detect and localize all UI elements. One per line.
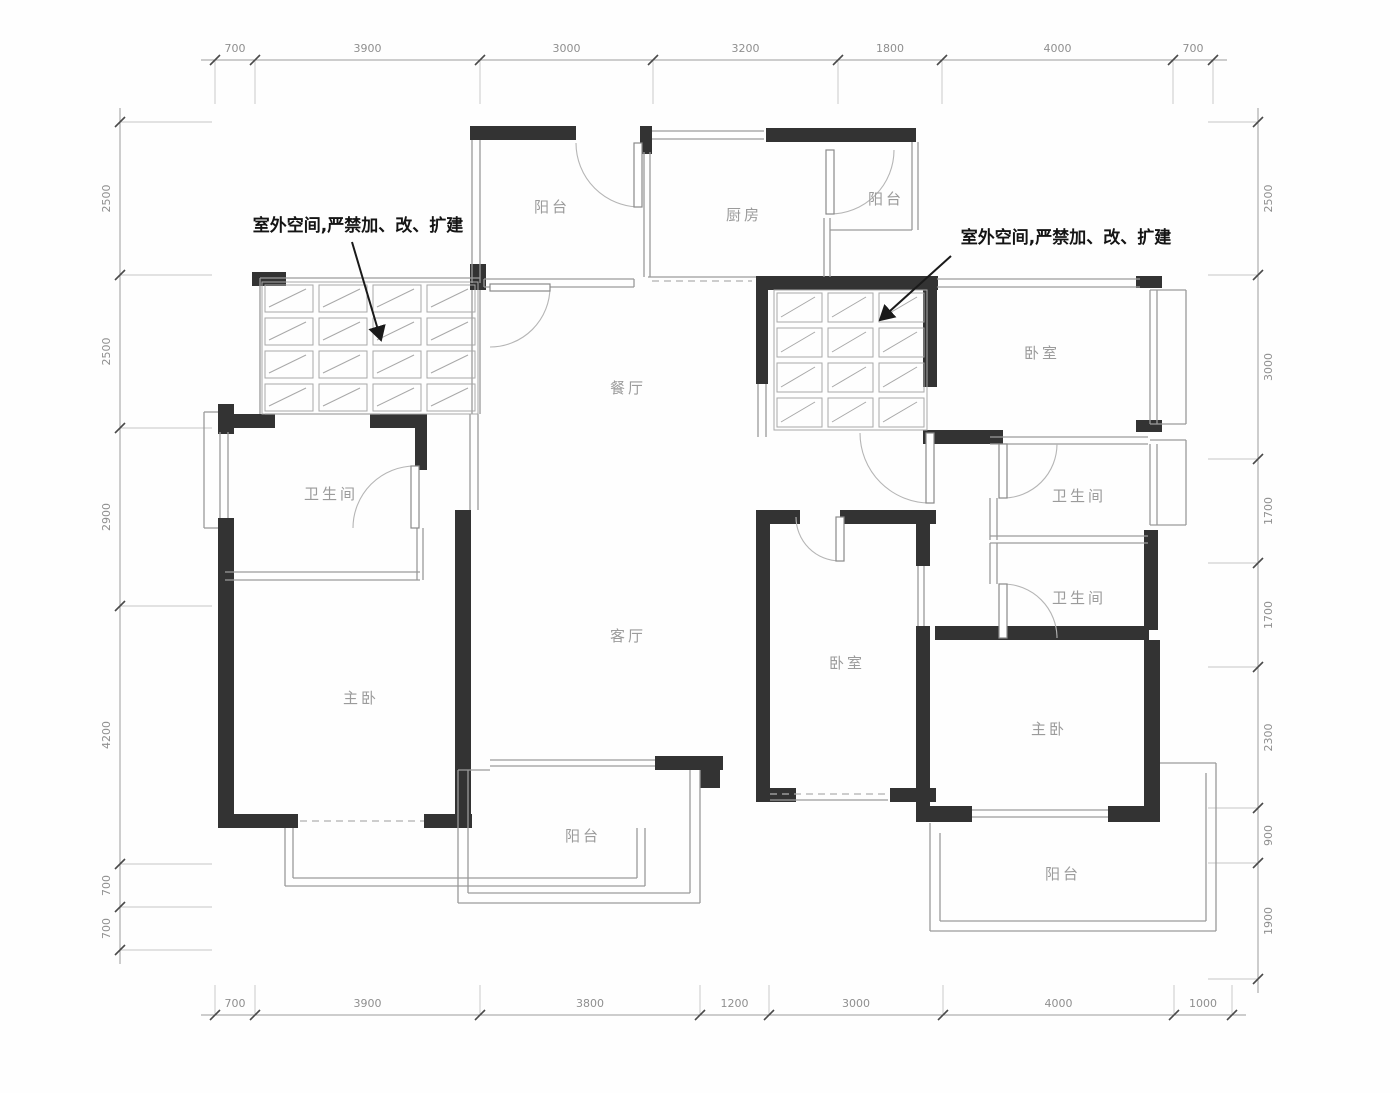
- platform-grid-louvre: [832, 332, 866, 352]
- dimension-value: 2500: [100, 185, 113, 213]
- platform-grid-louvre: [323, 322, 360, 340]
- platform-grid-louvre: [269, 322, 306, 340]
- wall-segment: [1136, 276, 1162, 288]
- dimension-value: 3200: [732, 42, 760, 55]
- platform-grid-louvre: [377, 355, 414, 373]
- room-label-bathroom-right-top: 卫生间: [1052, 487, 1106, 505]
- wall-segment: [700, 770, 720, 788]
- room-label-bathroom-left: 卫生间: [304, 485, 358, 503]
- dimension-value: 1900: [1262, 907, 1275, 935]
- door-leaf: [999, 584, 1007, 638]
- wall-segment: [1136, 420, 1162, 432]
- room-label-bedroom-top-right: 卧室: [1024, 344, 1060, 362]
- room-label-balcony-top-right: 阳台: [868, 190, 904, 208]
- wall-segment: [252, 272, 286, 286]
- extension-lines: [120, 60, 1258, 1015]
- platform-grid-louvre: [883, 332, 917, 352]
- platform-grid-cell: [777, 398, 822, 427]
- wall-segment: [1144, 640, 1160, 810]
- platform-grid-louvre: [781, 332, 815, 352]
- platform-grid-cell: [828, 398, 873, 427]
- wall-segment: [234, 814, 298, 828]
- platform-grid-louvre: [377, 388, 414, 406]
- dimension-value: 700: [100, 918, 113, 939]
- dimension-value: 4000: [1045, 997, 1073, 1010]
- platform-grid-louvre: [832, 367, 866, 387]
- platform-grid-cell: [879, 328, 924, 357]
- floor-plan-page: 7003900300032001800400070070039003800120…: [0, 0, 1400, 1093]
- platform-grid-cell: [879, 293, 924, 322]
- wall-segment: [655, 756, 723, 770]
- wall-segment: [424, 814, 472, 828]
- door-leaf: [490, 284, 550, 291]
- dimension-value: 1700: [1262, 601, 1275, 629]
- wall-segment: [1108, 806, 1160, 822]
- dimension-value: 3000: [842, 997, 870, 1010]
- platform-grid-louvre: [269, 289, 306, 307]
- platform-grid-louvre: [323, 388, 360, 406]
- door-leaf: [999, 444, 1007, 498]
- platform-grid-border: [774, 290, 927, 430]
- dimension-value: 2500: [1262, 185, 1275, 213]
- platform-grid-cell: [828, 363, 873, 392]
- platform-grid-louvre: [883, 402, 917, 422]
- platform-grid-louvre: [883, 367, 917, 387]
- dimension-value: 700: [225, 997, 246, 1010]
- dimension-value: 4000: [1044, 42, 1072, 55]
- platform-grid-louvre: [323, 289, 360, 307]
- dimension-lines: 7003900300032001800400070070039003800120…: [100, 42, 1275, 1020]
- wall-segment: [470, 126, 576, 140]
- dimension-value: 700: [100, 875, 113, 896]
- dimension-value: 3900: [354, 42, 382, 55]
- wall-segment: [916, 626, 930, 822]
- platform-grid-cell: [777, 328, 822, 357]
- outdoor-space-note-right: 室外空间,严禁加、改、扩建: [961, 227, 1171, 248]
- wall-segment: [756, 276, 938, 290]
- room-label-master-bedroom-left: 主卧: [343, 689, 379, 707]
- door-swing-arc: [353, 466, 415, 528]
- wall-segment: [370, 414, 422, 428]
- door-swing-arc: [576, 143, 640, 207]
- platform-grid-louvre: [781, 297, 815, 317]
- room-label-dining-room: 餐厅: [610, 379, 646, 397]
- room-label-living-room: 客厅: [610, 627, 646, 645]
- wall-segment: [930, 806, 972, 822]
- platform-grid-louvre: [431, 289, 468, 307]
- dimension-value: 2500: [100, 338, 113, 366]
- thin-walls: [204, 131, 1216, 931]
- dimension-value: 3800: [576, 997, 604, 1010]
- outdoor-platform-grids: [262, 282, 927, 430]
- room-label-balcony-top-left: 阳台: [534, 198, 570, 216]
- dimension-value: 4200: [100, 721, 113, 749]
- dimension-value: 900: [1262, 825, 1275, 846]
- wall-segment: [756, 288, 768, 384]
- door-swing-arc: [860, 433, 930, 503]
- floor-plan-svg: 7003900300032001800400070070039003800120…: [0, 0, 1400, 1093]
- room-label-kitchen: 厨房: [726, 206, 762, 224]
- platform-grid-louvre: [269, 388, 306, 406]
- wall-segment: [935, 626, 1149, 640]
- room-label-balcony-bottom-left: 阳台: [565, 827, 601, 845]
- door-leaf: [411, 466, 419, 528]
- platform-grid-louvre: [377, 322, 414, 340]
- platform-grid-cell: [828, 293, 873, 322]
- platform-grid-louvre: [781, 402, 815, 422]
- platform-grid-louvre: [377, 289, 414, 307]
- platform-grid-louvre: [323, 355, 360, 373]
- dimension-value: 1800: [876, 42, 904, 55]
- wall-segment: [756, 510, 770, 800]
- room-label-master-bedroom-right: 主卧: [1031, 720, 1067, 738]
- door-swing-arc: [490, 287, 550, 347]
- room-label-bathroom-right-bottom: 卫生间: [1052, 589, 1106, 607]
- platform-grid-cell: [879, 363, 924, 392]
- platform-grid-cell: [879, 398, 924, 427]
- platform-grid-cell: [777, 363, 822, 392]
- door-leaf: [926, 433, 934, 503]
- platform-grid-cell: [828, 328, 873, 357]
- dimension-value: 2900: [100, 503, 113, 531]
- wall-segment: [916, 510, 930, 566]
- platform-grid-louvre: [269, 355, 306, 373]
- dimension-value: 3900: [354, 997, 382, 1010]
- door-leaf: [826, 150, 834, 214]
- dashed-openings: [300, 281, 888, 821]
- platform-grid-louvre: [431, 355, 468, 373]
- platform-grid-louvre: [832, 402, 866, 422]
- dimension-value: 700: [225, 42, 246, 55]
- platform-grid-louvre: [431, 322, 468, 340]
- platform-grid-louvre: [781, 367, 815, 387]
- wall-segment: [923, 283, 937, 387]
- dimension-value: 700: [1183, 42, 1204, 55]
- door-swing-arc: [796, 517, 840, 561]
- platform-grid-cell: [777, 293, 822, 322]
- platform-grid-louvre: [431, 388, 468, 406]
- room-label-balcony-bottom-right: 阳台: [1045, 865, 1081, 883]
- door-leaf: [836, 517, 844, 561]
- platform-grid-louvre: [832, 297, 866, 317]
- outdoor-space-note-left: 室外空间,严禁加、改、扩建: [253, 215, 463, 236]
- wall-segment: [225, 414, 275, 428]
- room-label-bedroom-middle: 卧室: [829, 654, 865, 672]
- dimension-value: 3000: [553, 42, 581, 55]
- dimension-value: 1200: [721, 997, 749, 1010]
- wall-segment: [415, 414, 427, 470]
- door-swing-arc: [1003, 444, 1057, 498]
- dimension-value: 2300: [1262, 724, 1275, 752]
- dimension-value: 1700: [1262, 497, 1275, 525]
- dimension-value: 3000: [1262, 353, 1275, 381]
- wall-segment: [1144, 530, 1158, 630]
- wall-segment: [766, 128, 916, 142]
- wall-segment: [756, 510, 800, 524]
- wall-segment: [218, 518, 234, 828]
- door-leaf: [634, 143, 642, 207]
- dimension-value: 1000: [1189, 997, 1217, 1010]
